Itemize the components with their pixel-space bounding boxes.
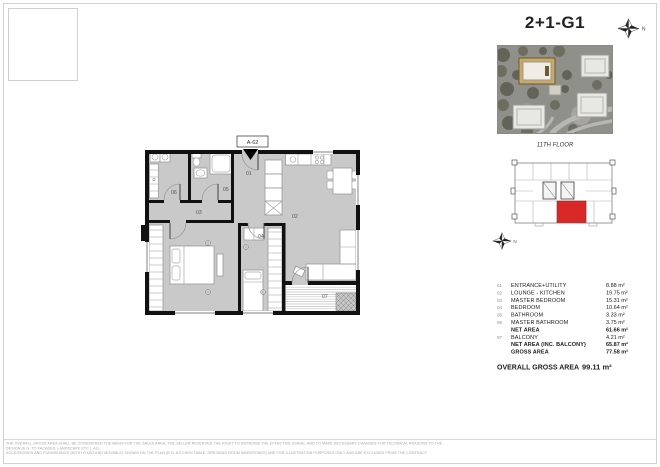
room-number: 01	[497, 282, 511, 289]
overall-gross-area-row: OVERALL GROSS AREA 99.11 m²	[497, 363, 654, 372]
schedule-row: 03 MASTER BEDROOM 15.31 m²	[497, 297, 654, 304]
room-label-04: 04	[258, 234, 264, 240]
room-name: BATHROOM	[511, 312, 606, 319]
room-name: BEDROOM	[511, 304, 606, 311]
room-area-value: 8.88 m²	[606, 282, 654, 289]
room-name: ENTRANCE+UTILITY	[511, 282, 606, 289]
disclaimer: THE OVERALL GROSS AREA SHALL BE CONSIDER…	[6, 441, 456, 455]
room-area-value: 4.21 m²	[606, 334, 654, 341]
area-schedule: 01 ENTRANCE+UTILITY 8.88 m² 02 LOUNGE - …	[497, 282, 654, 371]
wardrobe	[268, 228, 282, 311]
room-number: 07	[497, 334, 511, 341]
highlighted-unit	[557, 201, 586, 223]
bathroom-fixtures	[192, 153, 232, 178]
room-label-05: 05	[223, 187, 229, 193]
room-name: BALCONY	[511, 334, 606, 341]
kitchen-tall-cabinets	[265, 160, 282, 215]
schedule-row: 04 BEDROOM 10.64 m²	[497, 304, 654, 311]
room-name: LOUNGE - KITCHEN	[511, 289, 606, 296]
room-name: MASTER BEDROOM	[511, 297, 606, 304]
schedule-rows: 01 ENTRANCE+UTILITY 8.88 m² 02 LOUNGE - …	[497, 282, 654, 356]
room-name: NET AREA	[511, 326, 606, 333]
keyplan-compass-icon: N	[492, 231, 518, 251]
satellite-site-map	[497, 45, 613, 134]
footer-rule	[4, 439, 656, 440]
room-area-value: 65.87 m²	[606, 341, 654, 348]
room-area-value: 19.75 m²	[606, 289, 654, 296]
unit-title: 2+1-G1	[497, 13, 613, 33]
disclaimer-line-1: THE OVERALL GROSS AREA SHALL BE CONSIDER…	[6, 441, 456, 451]
room-name: MASTER BATHROOM	[511, 319, 606, 326]
dryer-icon	[162, 154, 168, 160]
room-label-07: 07	[322, 294, 328, 300]
room-label-03: 03	[196, 210, 202, 216]
north-label: N	[513, 239, 516, 244]
room-name: NET AREA (INC. BALCONY)	[511, 341, 606, 348]
unit-label: A-62	[247, 140, 259, 146]
room-label-06: 06	[171, 190, 177, 196]
schedule-row: NET AREA 61.66 m²	[497, 326, 654, 333]
overall-value: 99.11 m²	[582, 363, 654, 372]
floor-plan-sheet: A-62 01 02 03 04 05 06 07 2+1-G1 N	[0, 0, 660, 467]
kitchen-sink	[290, 157, 296, 163]
room-area-value: 3.33 m²	[606, 312, 654, 319]
floor-key-plan	[505, 153, 617, 231]
schedule-row: NET AREA (INC. BALCONY) 65.87 m²	[497, 341, 654, 348]
north-label: N	[642, 27, 646, 33]
bench	[217, 254, 223, 276]
washer-icon	[152, 154, 158, 160]
room-label-02: 02	[292, 214, 298, 220]
room-area-value: 77.58 m²	[606, 349, 654, 356]
room-number: 06	[497, 319, 511, 326]
schedule-row: 06 MASTER BATHROOM 3.75 m²	[497, 319, 654, 326]
room-number: 04	[497, 304, 511, 311]
room-number: 02	[497, 289, 511, 296]
schedule-row: GROSS AREA 77.58 m²	[497, 349, 654, 356]
wardrobe	[149, 225, 163, 311]
floor-label: 11TH FLOOR	[497, 141, 613, 148]
kitchen-counter	[286, 154, 332, 165]
room-label-01: 01	[246, 171, 252, 177]
room-name: GROSS AREA	[511, 349, 606, 356]
disclaimer-line-2: ACCESSORIES AND FURNISHINGS (BOTH FIXED …	[6, 451, 456, 456]
room-number: 03	[497, 297, 511, 304]
schedule-row: 05 BATHROOM 3.33 m²	[497, 312, 654, 319]
schedule-row: 07 BALCONY 4.21 m²	[497, 334, 654, 341]
room-area-value: 3.75 m²	[606, 319, 654, 326]
schedule-row: 01 ENTRANCE+UTILITY 8.88 m²	[497, 282, 654, 289]
logo-placeholder-box	[8, 8, 78, 81]
room-area-value: 61.66 m²	[606, 326, 654, 333]
floor-plan-drawing: A-62 01 02 03 04 05 06 07	[130, 130, 380, 325]
room-area-value: 15.31 m²	[606, 297, 654, 304]
overall-label: OVERALL GROSS AREA	[497, 363, 582, 372]
north-compass-icon: N	[617, 17, 647, 40]
balcony-hatch	[286, 285, 357, 311]
room-number: 05	[497, 312, 511, 319]
schedule-row: 02 LOUNGE - KITCHEN 19.75 m²	[497, 289, 654, 296]
room-area-value: 10.64 m²	[606, 304, 654, 311]
